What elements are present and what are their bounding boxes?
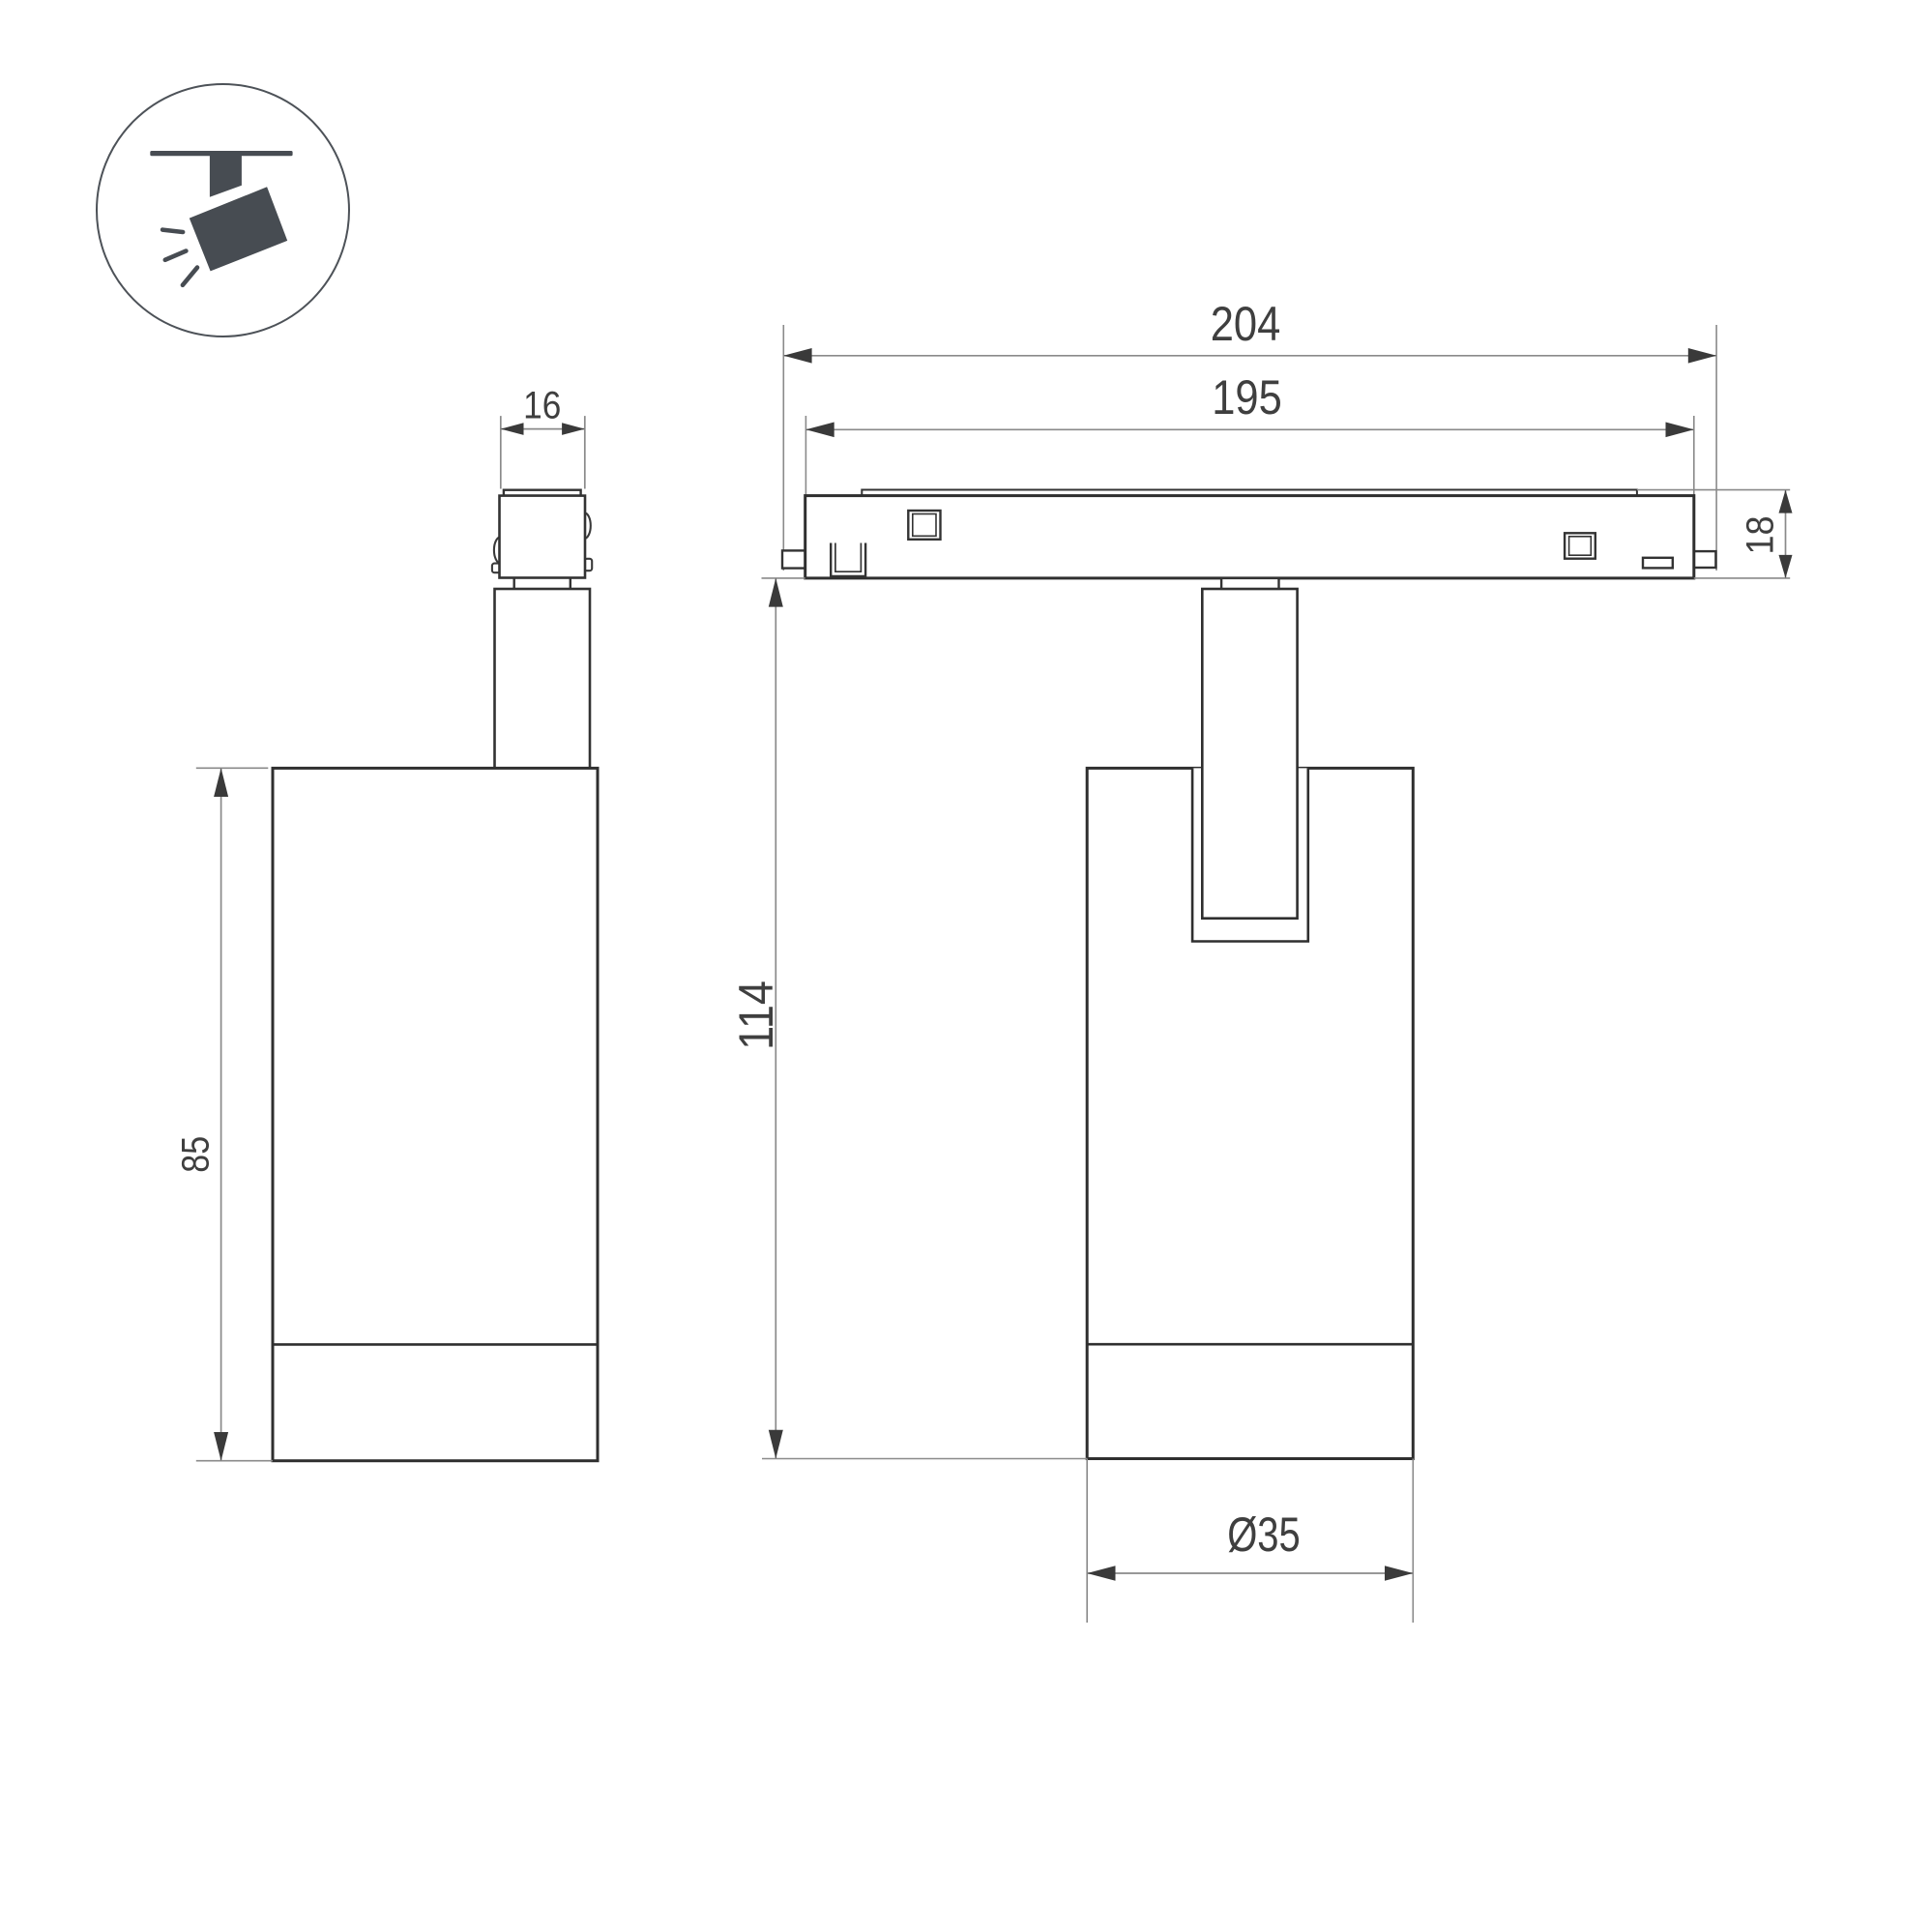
svg-text:85: 85 [173,1136,217,1173]
svg-text:Ø35: Ø35 [1227,1508,1301,1562]
svg-text:204: 204 [1211,297,1281,350]
svg-text:16: 16 [523,383,561,426]
svg-text:114: 114 [730,981,784,1050]
svg-text:195: 195 [1212,370,1282,424]
svg-text:18: 18 [1740,515,1782,554]
